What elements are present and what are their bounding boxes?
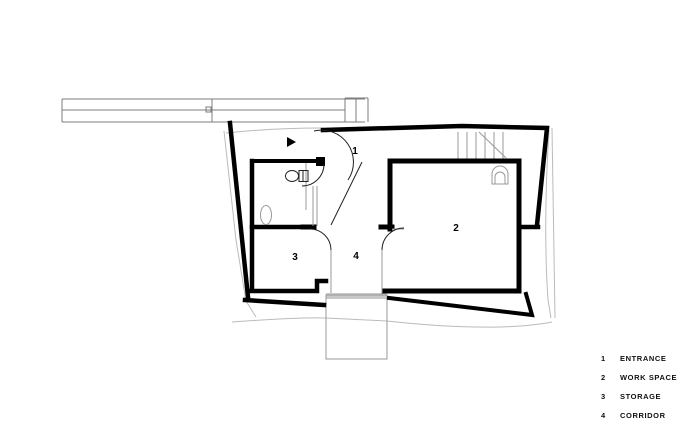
legend-num: 3 bbox=[601, 387, 620, 406]
basin-icon bbox=[261, 206, 272, 225]
room-label-entrance: 1 bbox=[352, 146, 358, 157]
threshold-band bbox=[326, 293, 387, 299]
left-reveal-arc bbox=[310, 229, 331, 250]
exterior-stairs bbox=[458, 132, 506, 159]
room-label-workspace: 2 bbox=[453, 223, 459, 234]
workspace-fixture bbox=[492, 166, 508, 184]
toilet-icon bbox=[286, 171, 299, 182]
legend-label: STORAGE bbox=[620, 387, 661, 406]
sink-icon bbox=[492, 166, 508, 184]
bathroom bbox=[261, 163, 325, 225]
legend-num: 4 bbox=[601, 406, 620, 425]
legend: 1 ENTRANCE 2 WORK SPACE 3 STORAGE 4 CORR… bbox=[601, 349, 677, 425]
legend-num: 2 bbox=[601, 368, 620, 387]
workspace-walls bbox=[384, 161, 519, 291]
legend-label: WORK SPACE bbox=[620, 368, 677, 387]
outer-wall-south-left bbox=[245, 300, 324, 305]
ramp-line bbox=[331, 162, 362, 225]
legend-item-corridor: 4 CORRIDOR bbox=[601, 406, 677, 425]
legend-label: ENTRANCE bbox=[620, 349, 666, 368]
floor-plan-canvas: 1 2 3 4 1 ENTRANCE 2 WORK SPACE 3 STORAG… bbox=[0, 0, 700, 438]
outer-wall-south-right bbox=[389, 294, 532, 315]
entrance-direction-arrow-icon bbox=[287, 137, 296, 147]
legend-item-storage: 3 STORAGE bbox=[601, 387, 677, 406]
walkway-bridge bbox=[62, 98, 368, 122]
storage-south-wall bbox=[250, 281, 326, 291]
legend-item-workspace: 2 WORK SPACE bbox=[601, 368, 677, 387]
legend-item-entrance: 1 ENTRANCE bbox=[601, 349, 677, 368]
floor-plan-drawing: 1 2 3 4 bbox=[0, 0, 700, 438]
outer-wall-north-east bbox=[323, 126, 547, 225]
room-label-storage: 3 bbox=[292, 252, 298, 263]
room-label-corridor: 4 bbox=[353, 251, 359, 262]
right-reveal-arc bbox=[382, 228, 404, 250]
terrace-steps bbox=[326, 293, 387, 359]
curved-vestibule-wall bbox=[314, 130, 353, 180]
bathroom-door-arc bbox=[302, 164, 324, 186]
legend-label: CORRIDOR bbox=[620, 406, 666, 425]
legend-num: 1 bbox=[601, 349, 620, 368]
